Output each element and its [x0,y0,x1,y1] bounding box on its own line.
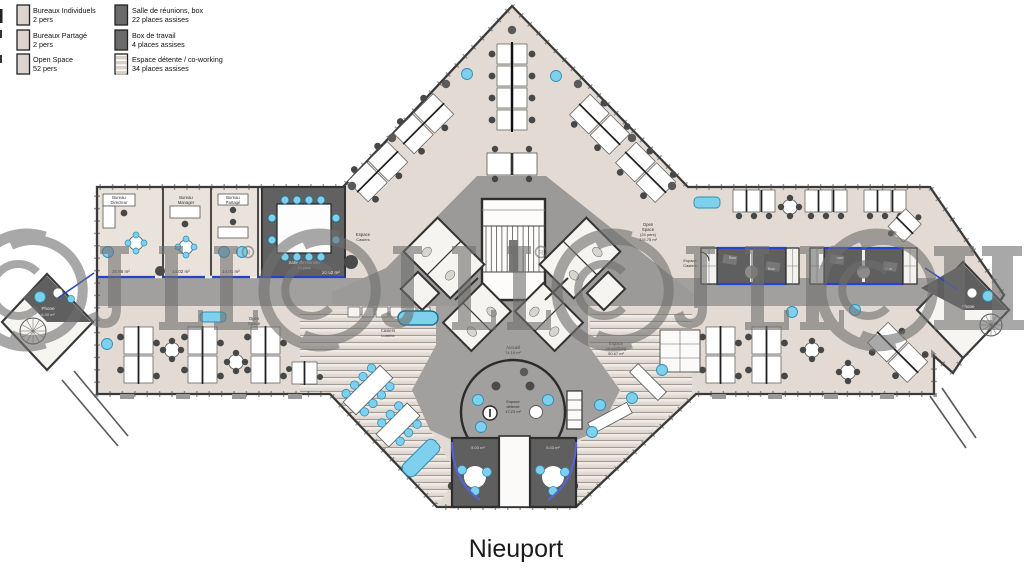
svg-text:Nieuport: Nieuport [469,535,564,563]
svg-text:Phone: Phone [41,306,55,311]
svg-text:5.03 m²: 5.03 m² [471,445,485,450]
svg-text:Espace détente / co-working: Espace détente / co-working [132,55,223,64]
svg-text:22 places assises: 22 places assises [132,15,189,24]
svg-text:R: R [538,248,544,257]
svg-text:2 pers: 2 pers [33,40,53,49]
svg-text:Manager: Manager [178,200,195,205]
svg-text:50.67 m²: 50.67 m² [608,351,624,356]
svg-text:Directeur: Directeur [111,200,129,205]
svg-text:Box: Box [768,266,775,271]
svg-text:R: R [245,248,251,257]
svg-text:34 places assises: 34 places assises [132,64,189,73]
svg-text:17.23 m²: 17.23 m² [505,409,521,414]
svg-text:Open Space: Open Space [33,55,73,64]
svg-text:Bureaux Partagé: Bureaux Partagé [33,31,87,40]
svg-text:5.03 m²: 5.03 m² [546,445,560,450]
svg-text:2 pers: 2 pers [33,15,53,24]
svg-text:Lunerie: Lunerie [381,333,395,338]
svg-text:74.19 m²: 74.19 m² [505,350,521,355]
svg-text:52 pers: 52 pers [33,64,57,73]
svg-text:Box de travail: Box de travail [132,31,176,40]
svg-text:6.40 m²: 6.40 m² [41,312,55,317]
svg-text:Salle de réunions, box: Salle de réunions, box [132,6,204,15]
svg-text:Bureaux Individuels: Bureaux Individuels [33,6,96,15]
svg-text:Partagé: Partagé [226,200,241,205]
svg-text:Box: Box [729,255,736,260]
svg-text:Casiers: Casiers [356,237,370,242]
svg-text:4 places assises: 4 places assises [132,40,185,49]
